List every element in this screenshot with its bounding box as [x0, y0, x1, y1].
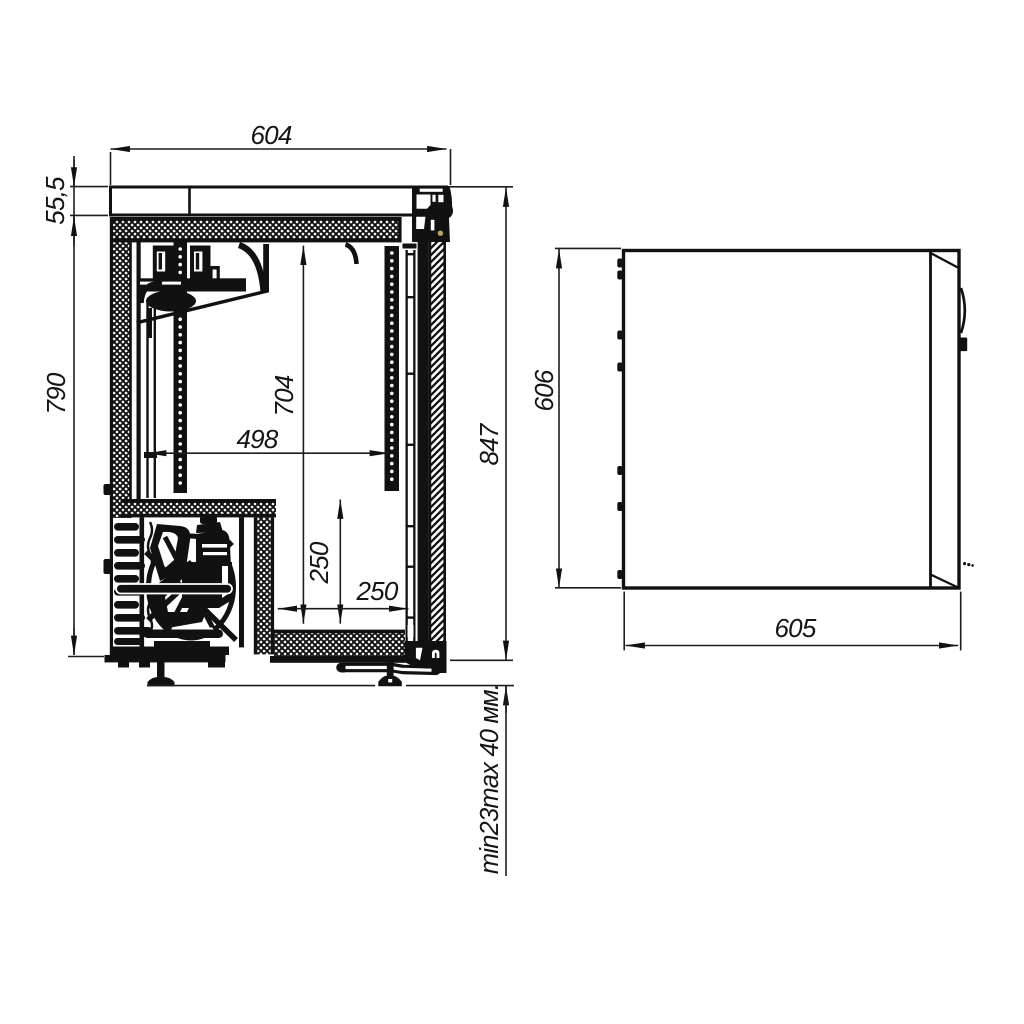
svg-text:250: 250 — [356, 576, 399, 606]
svg-text:min23max 40 мм.: min23max 40 мм. — [476, 684, 504, 874]
svg-text:606: 606 — [529, 369, 559, 411]
svg-text:250: 250 — [304, 541, 334, 584]
svg-text:55,5: 55,5 — [40, 176, 70, 225]
svg-text:790: 790 — [41, 372, 71, 414]
svg-text:847: 847 — [474, 422, 504, 465]
svg-text:605: 605 — [775, 613, 817, 643]
svg-text:604: 604 — [251, 120, 292, 150]
svg-text:704: 704 — [269, 375, 299, 416]
svg-text:498: 498 — [237, 424, 279, 454]
